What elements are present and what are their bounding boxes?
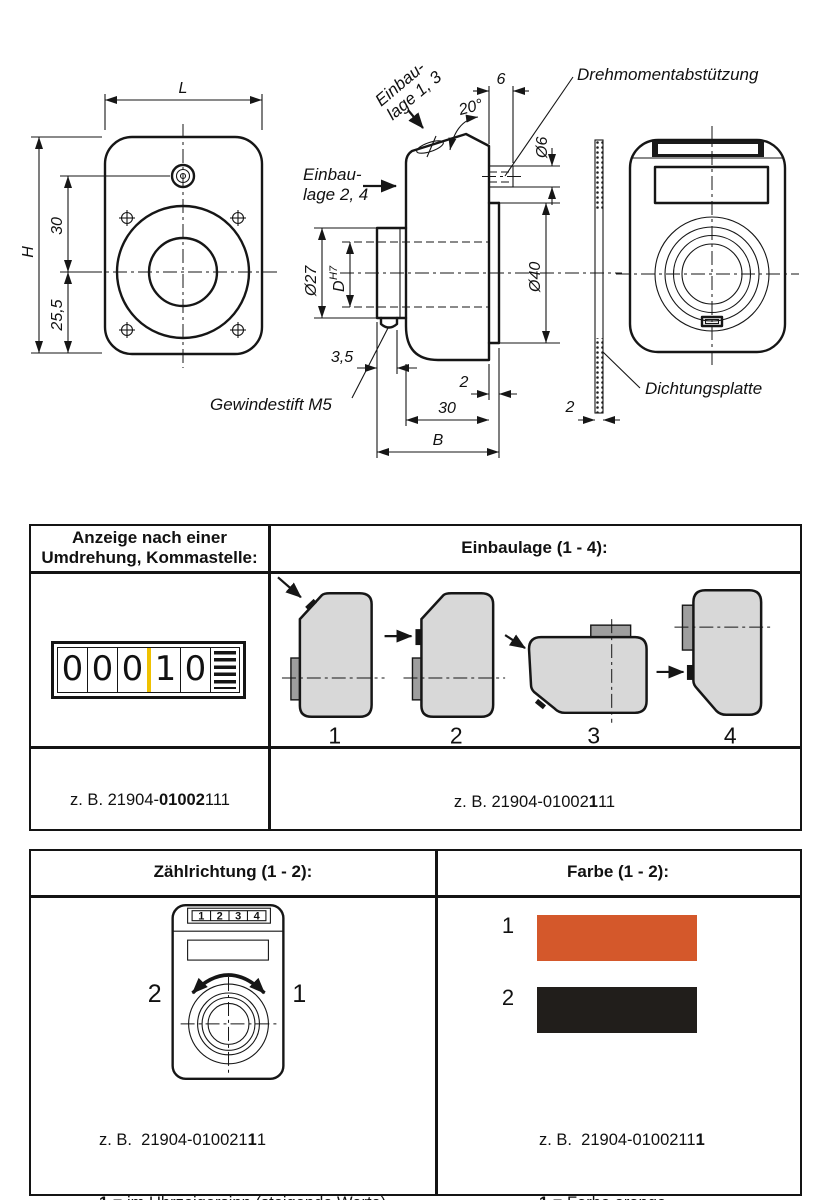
counter-digit: 0 [181, 648, 211, 692]
position-number-2: 2 [450, 723, 463, 749]
counter-digit: 0 [88, 648, 118, 692]
label-dichtungsplatte: Dichtungsplatte [645, 379, 762, 398]
dim-label-30b: 30 [438, 400, 456, 417]
color-swatch-black [537, 987, 697, 1033]
table2-right-note: z. B. 21904-01002111 1 = Farbe orange 2 … [539, 1088, 705, 1200]
mini-digit: 2 [217, 910, 223, 922]
color-label-2: 2 [493, 985, 523, 1011]
back-view [616, 126, 799, 367]
catalog-page: L H 30 25,5 [0, 0, 832, 1200]
table2-header-right: Farbe (1 - 2): [435, 862, 801, 882]
set-screw [381, 318, 397, 328]
position-number-3: 3 [587, 723, 600, 749]
label-einbaulage-24-line2: lage 2, 4 [303, 185, 368, 204]
direction-label-left: 2 [148, 980, 162, 1008]
dim-label-dia27: Ø27 [303, 265, 320, 297]
counter-digit: 0 [118, 648, 147, 692]
knurl-wheel [214, 651, 236, 689]
mini-counter: 1 2 3 4 [188, 908, 271, 923]
table1-header-right: Einbaulage (1 - 4): [268, 538, 801, 558]
counter-digit: 1 [151, 648, 181, 692]
direction-label-right: 1 [292, 980, 306, 1008]
dim-label-H: H [20, 246, 37, 258]
label-drehmomentabstuetzung: Drehmomentabstützung [577, 65, 759, 84]
position-number-4: 4 [724, 723, 737, 749]
front-view: L H 30 25,5 [20, 80, 280, 368]
table1-header-left: Anzeige nach einer Umdrehung, Kommastell… [31, 528, 268, 568]
dim-label-6: 6 [497, 71, 506, 88]
einbaulage-fig-3: 3 [505, 619, 646, 749]
counter-display: 0 0 0 1 0 [51, 641, 246, 699]
label-einbaulage-24-line1: Einbau- [303, 165, 362, 184]
einbaulage-figures: 1 2 3 [270, 575, 800, 750]
dim-label-2: 2 [459, 374, 469, 391]
dim-label-25-5: 25,5 [49, 299, 66, 331]
dim-label-L: L [179, 80, 188, 97]
color-swatch-orange [537, 915, 697, 961]
table2-header-left: Zählrichtung (1 - 2): [31, 862, 435, 882]
dim-label-D: D [331, 280, 348, 292]
dim-label-dia6: Ø6 [534, 137, 551, 159]
dim-label-20deg: 20° [456, 96, 485, 119]
mini-digit: 4 [254, 910, 261, 922]
label-gewindestift: Gewindestift M5 [210, 395, 332, 414]
einbaulage-fig-4: 4 [657, 590, 773, 748]
counter-digit: 0 [58, 648, 88, 692]
dim-label-H7: H7 [328, 265, 340, 280]
order-code-example: z. B. 21904-01002111 [35, 791, 265, 811]
table1-note-line [31, 746, 268, 749]
dim-label-3-5: 3,5 [331, 349, 353, 366]
table2-divider [435, 851, 438, 1194]
dim-label-B: B [433, 432, 444, 449]
seal-plate: 2 Dichtungsplatte [565, 140, 763, 420]
dim-label-2b: 2 [565, 399, 575, 416]
order-code-example: z. B. 21904-01002111 [268, 793, 801, 813]
einbaulage-fig-1: 1 [278, 577, 385, 748]
color-label-1: 1 [493, 913, 523, 939]
order-code-example: z. B. 21904-01002111 [99, 1130, 415, 1151]
order-code-example: z. B. 21904-01002111 [539, 1130, 705, 1151]
mini-digit: 3 [235, 910, 241, 922]
dim-label-dia40: Ø40 [527, 262, 544, 293]
table1-header-line [31, 571, 800, 574]
zaehlrichtung-figure: 1 2 3 4 2 1 [31, 897, 435, 1087]
table-zaehlrichtung-farbe: Zählrichtung (1 - 2): Farbe (1 - 2): 1 2… [29, 849, 802, 1196]
mini-digit: 1 [198, 910, 204, 922]
technical-drawing: L H 30 25,5 [0, 0, 832, 500]
table-anzeige-einbaulage: Anzeige nach einer Umdrehung, Kommastell… [29, 524, 802, 831]
position-number-1: 1 [328, 723, 341, 749]
dim-label-30: 30 [49, 217, 66, 235]
einbaulage-fig-2: 2 [385, 593, 506, 748]
display-window [188, 940, 269, 960]
table2-left-note: z. B. 21904-01002111 1 = im Uhrzeigersin… [99, 1088, 415, 1200]
